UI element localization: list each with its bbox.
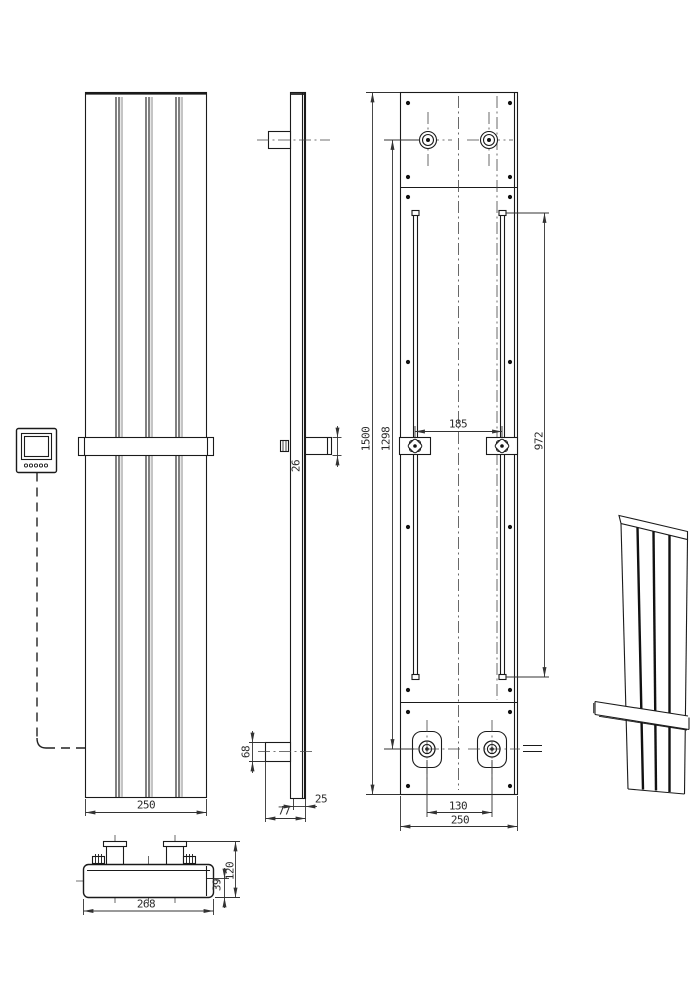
- control-screen: [22, 434, 52, 460]
- dim-back-pipe-height: 1298: [381, 427, 392, 452]
- front-view: [79, 93, 214, 817]
- dim-side-offset: 25: [315, 794, 327, 805]
- control-unit: [17, 429, 57, 473]
- perspective-view: [594, 516, 689, 795]
- top-valve-right: [481, 132, 498, 149]
- dim-back-rail: 972: [534, 432, 545, 450]
- dim-back-tappings: 130: [449, 801, 467, 812]
- technical-drawing: [0, 0, 699, 1000]
- top-valve-left: [420, 132, 437, 149]
- dim-back-bracket: 185: [449, 419, 467, 430]
- dim-side-depth: 77: [278, 806, 290, 817]
- bracket-right: [487, 438, 518, 455]
- level-symbol: [523, 746, 542, 752]
- dim-back-height: 1500: [361, 427, 372, 452]
- cable: [37, 473, 86, 749]
- radiator-body-top: [84, 865, 214, 898]
- towel-bar-front: [79, 438, 214, 456]
- drawing-canvas: 250 26 68 25 77 1500 1298 185 972 130 25…: [0, 0, 699, 1000]
- dim-side-pipe: 68: [241, 746, 252, 758]
- dim-top-body: 39: [212, 879, 223, 891]
- dim-top-depth: 120: [225, 862, 236, 880]
- dim-side-bar: 26: [291, 460, 302, 472]
- dim-back-width: 250: [451, 815, 469, 826]
- dim-top-width: 268: [137, 899, 155, 910]
- pipe-left-top: [104, 842, 127, 866]
- top-view: [76, 835, 240, 915]
- panel-gaps-3d: [638, 528, 670, 793]
- back-view: [366, 93, 549, 832]
- dim-front-width: 250: [137, 800, 155, 811]
- side-view: [249, 93, 342, 823]
- bracket-left: [400, 438, 431, 455]
